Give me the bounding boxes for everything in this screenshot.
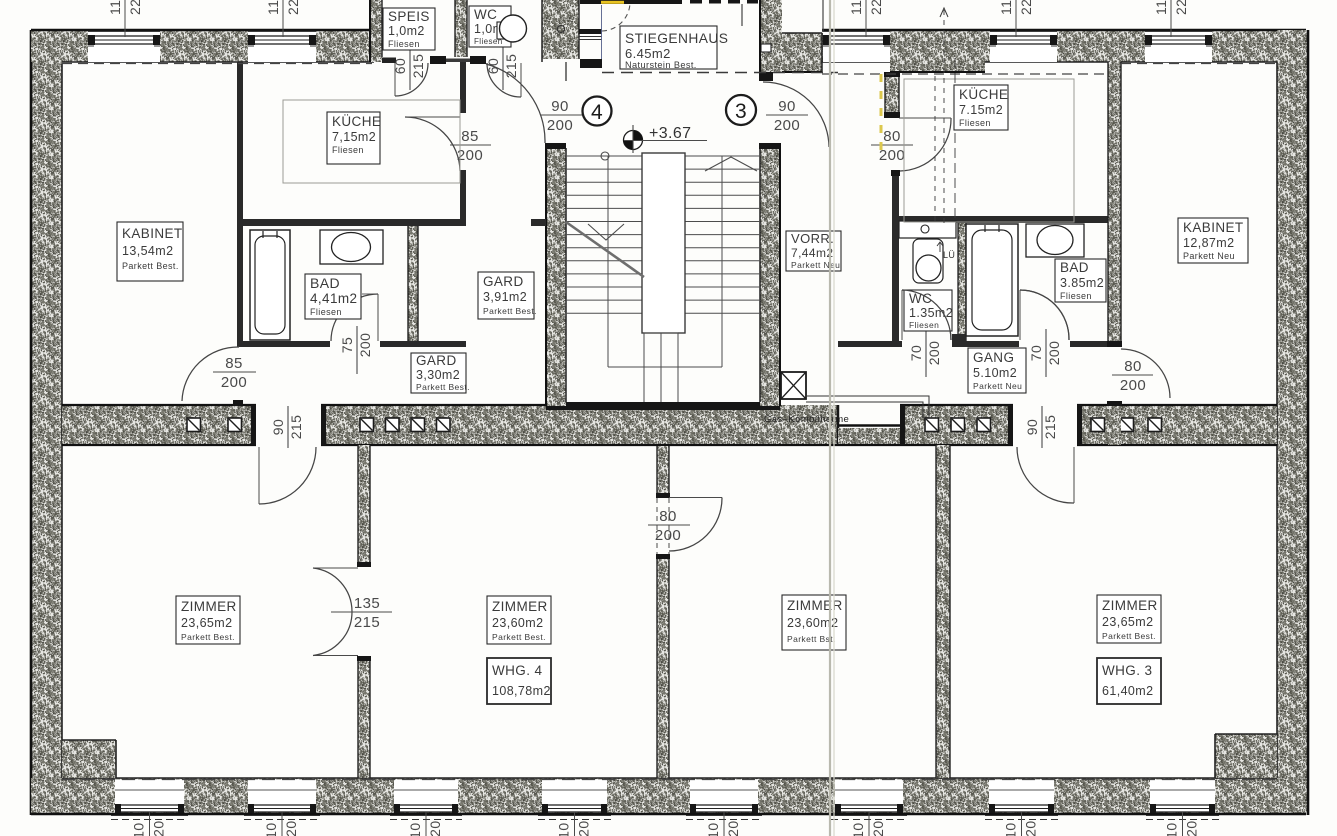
- svg-text:Parkett Best.: Parkett Best.: [492, 632, 546, 642]
- svg-text:SPEIS: SPEIS: [388, 9, 430, 24]
- svg-text:ZIMMER: ZIMMER: [492, 599, 548, 614]
- svg-text:80: 80: [659, 508, 677, 525]
- svg-text:220: 220: [1018, 0, 1034, 15]
- svg-text:108,78m2: 108,78m2: [492, 684, 551, 698]
- svg-text:80: 80: [883, 128, 901, 145]
- svg-text:80: 80: [1124, 358, 1142, 375]
- svg-text:220: 220: [283, 820, 299, 836]
- svg-text:215: 215: [1042, 415, 1058, 440]
- svg-text:90: 90: [778, 98, 796, 115]
- svg-text:GARD: GARD: [416, 353, 457, 368]
- svg-text:215: 215: [354, 614, 380, 631]
- svg-text:110: 110: [107, 0, 123, 15]
- svg-text:200: 200: [357, 333, 373, 358]
- svg-text:Fliesen: Fliesen: [909, 320, 939, 330]
- svg-text:200: 200: [926, 341, 942, 366]
- svg-text:3,30m2: 3,30m2: [416, 368, 460, 382]
- svg-text:Parkett Best.: Parkett Best.: [416, 382, 470, 392]
- svg-text:90: 90: [1024, 419, 1040, 435]
- svg-text:VORR.: VORR.: [791, 231, 834, 246]
- svg-text:5.10m2: 5.10m2: [973, 366, 1017, 380]
- svg-text:Fliesen: Fliesen: [310, 307, 342, 317]
- svg-text:BAD: BAD: [1060, 260, 1089, 275]
- svg-text:Fliesen: Fliesen: [388, 39, 420, 49]
- svg-text:23,65m2: 23,65m2: [181, 616, 232, 630]
- svg-text:200: 200: [547, 117, 573, 134]
- svg-text:110: 110: [705, 822, 721, 836]
- svg-text:220: 220: [868, 0, 884, 15]
- svg-text:Fliesen: Fliesen: [1060, 291, 1092, 301]
- svg-text:KABINET: KABINET: [122, 226, 183, 241]
- svg-text:7,44m2: 7,44m2: [791, 246, 833, 260]
- svg-text:23,60m2: 23,60m2: [492, 616, 543, 630]
- svg-text:215: 215: [410, 54, 426, 79]
- svg-text:Parkett Neu: Parkett Neu: [791, 260, 840, 270]
- svg-text:3: 3: [735, 100, 747, 123]
- svg-text:7,15m2: 7,15m2: [332, 130, 376, 144]
- svg-text:220: 220: [151, 820, 167, 836]
- svg-text:WC: WC: [474, 7, 497, 22]
- svg-text:Naturstein Best.: Naturstein Best.: [625, 60, 697, 70]
- svg-text:Fliesen: Fliesen: [959, 118, 991, 128]
- svg-text:220: 220: [127, 0, 143, 15]
- svg-text:110: 110: [131, 822, 147, 836]
- svg-text:220: 220: [1023, 820, 1039, 836]
- svg-text:200: 200: [1120, 377, 1146, 394]
- svg-text:200: 200: [879, 147, 905, 164]
- svg-text:4: 4: [591, 101, 603, 124]
- svg-text:70: 70: [1028, 345, 1044, 361]
- svg-text:85: 85: [461, 128, 479, 145]
- svg-text:+3.67: +3.67: [649, 125, 691, 142]
- svg-text:110: 110: [407, 822, 423, 836]
- svg-text:60: 60: [392, 58, 408, 74]
- svg-text:110: 110: [1003, 822, 1019, 836]
- svg-text:WHG. 3: WHG. 3: [1102, 663, 1152, 678]
- svg-text:90: 90: [270, 419, 286, 435]
- svg-text:7.15m2: 7.15m2: [959, 103, 1003, 117]
- svg-text:215: 215: [503, 54, 519, 79]
- svg-text:220: 220: [285, 0, 301, 15]
- svg-text:110: 110: [850, 822, 866, 836]
- svg-text:110: 110: [556, 822, 572, 836]
- svg-text:110: 110: [998, 0, 1014, 15]
- svg-text:220: 220: [427, 820, 443, 836]
- svg-text:110: 110: [263, 822, 279, 836]
- svg-text:200: 200: [221, 374, 247, 391]
- svg-text:Parkett Best.: Parkett Best.: [181, 632, 235, 642]
- svg-text:Parkett Bst.: Parkett Bst.: [787, 634, 836, 644]
- svg-text:Parkett Best.: Parkett Best.: [483, 306, 537, 316]
- svg-text:220: 220: [1173, 0, 1189, 15]
- svg-text:Parkett Best.: Parkett Best.: [1102, 631, 1156, 641]
- svg-text:75: 75: [339, 337, 355, 353]
- svg-text:LÜ: LÜ: [943, 250, 955, 260]
- svg-text:220: 220: [576, 820, 592, 836]
- svg-text:110: 110: [265, 0, 281, 15]
- svg-text:Parkett Best.: Parkett Best.: [122, 261, 179, 271]
- svg-text:6.45m2: 6.45m2: [625, 46, 671, 61]
- svg-text:STIEGENHAUS: STIEGENHAUS: [625, 31, 728, 46]
- svg-text:135: 135: [354, 595, 380, 612]
- svg-text:Parkett Neu: Parkett Neu: [973, 381, 1022, 391]
- svg-text:85: 85: [225, 355, 243, 372]
- svg-text:220: 220: [1184, 820, 1200, 836]
- svg-text:3.85m2: 3.85m2: [1060, 276, 1104, 290]
- svg-text:GARD: GARD: [483, 274, 524, 289]
- svg-text:13,54m2: 13,54m2: [122, 244, 173, 258]
- svg-text:70: 70: [908, 345, 924, 361]
- svg-text:215: 215: [288, 415, 304, 440]
- svg-text:4,41m2: 4,41m2: [310, 291, 357, 306]
- svg-text:200: 200: [774, 117, 800, 134]
- svg-text:GANG: GANG: [973, 350, 1014, 365]
- svg-text:1,0m2: 1,0m2: [388, 24, 425, 38]
- svg-text:110: 110: [1153, 0, 1169, 15]
- svg-text:12,87m2: 12,87m2: [1183, 236, 1234, 250]
- svg-text:200: 200: [457, 147, 483, 164]
- svg-text:BAD: BAD: [310, 275, 340, 291]
- svg-text:200: 200: [1046, 341, 1062, 366]
- svg-text:KÜCHE: KÜCHE: [332, 114, 381, 129]
- svg-text:Gas–Kombitherme: Gas–Kombitherme: [764, 414, 849, 425]
- svg-text:KABINET: KABINET: [1183, 220, 1244, 235]
- svg-text:220: 220: [870, 820, 886, 836]
- svg-text:110: 110: [848, 0, 864, 15]
- svg-text:200: 200: [655, 527, 681, 544]
- svg-text:ZIMMER: ZIMMER: [1102, 598, 1158, 613]
- svg-text:WHG. 4: WHG. 4: [492, 663, 542, 678]
- svg-text:61,40m2: 61,40m2: [1102, 684, 1153, 698]
- svg-text:Parkett Neu: Parkett Neu: [1183, 251, 1235, 261]
- svg-text:110: 110: [1164, 822, 1180, 836]
- svg-text:ZIMMER: ZIMMER: [181, 599, 237, 614]
- svg-text:23,65m2: 23,65m2: [1102, 615, 1153, 629]
- svg-text:3,91m2: 3,91m2: [483, 290, 527, 304]
- svg-text:90: 90: [551, 98, 569, 115]
- svg-text:KÜCHE: KÜCHE: [959, 87, 1008, 102]
- svg-text:220: 220: [725, 820, 741, 836]
- svg-text:Fliesen: Fliesen: [332, 145, 364, 155]
